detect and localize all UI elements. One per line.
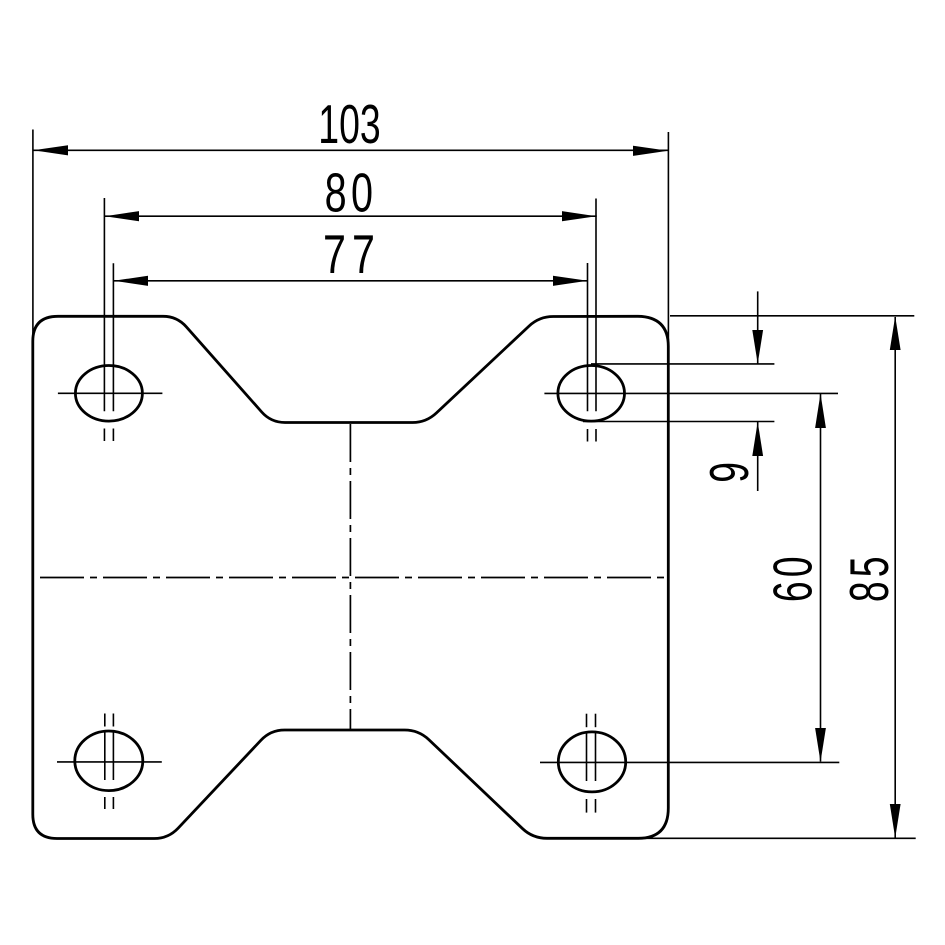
svg-text:60: 60	[761, 552, 823, 602]
svg-text:9: 9	[698, 462, 760, 483]
svg-text:77: 77	[323, 224, 381, 285]
svg-text:103: 103	[318, 93, 380, 155]
svg-text:80: 80	[325, 163, 378, 224]
svg-text:85: 85	[838, 552, 900, 602]
